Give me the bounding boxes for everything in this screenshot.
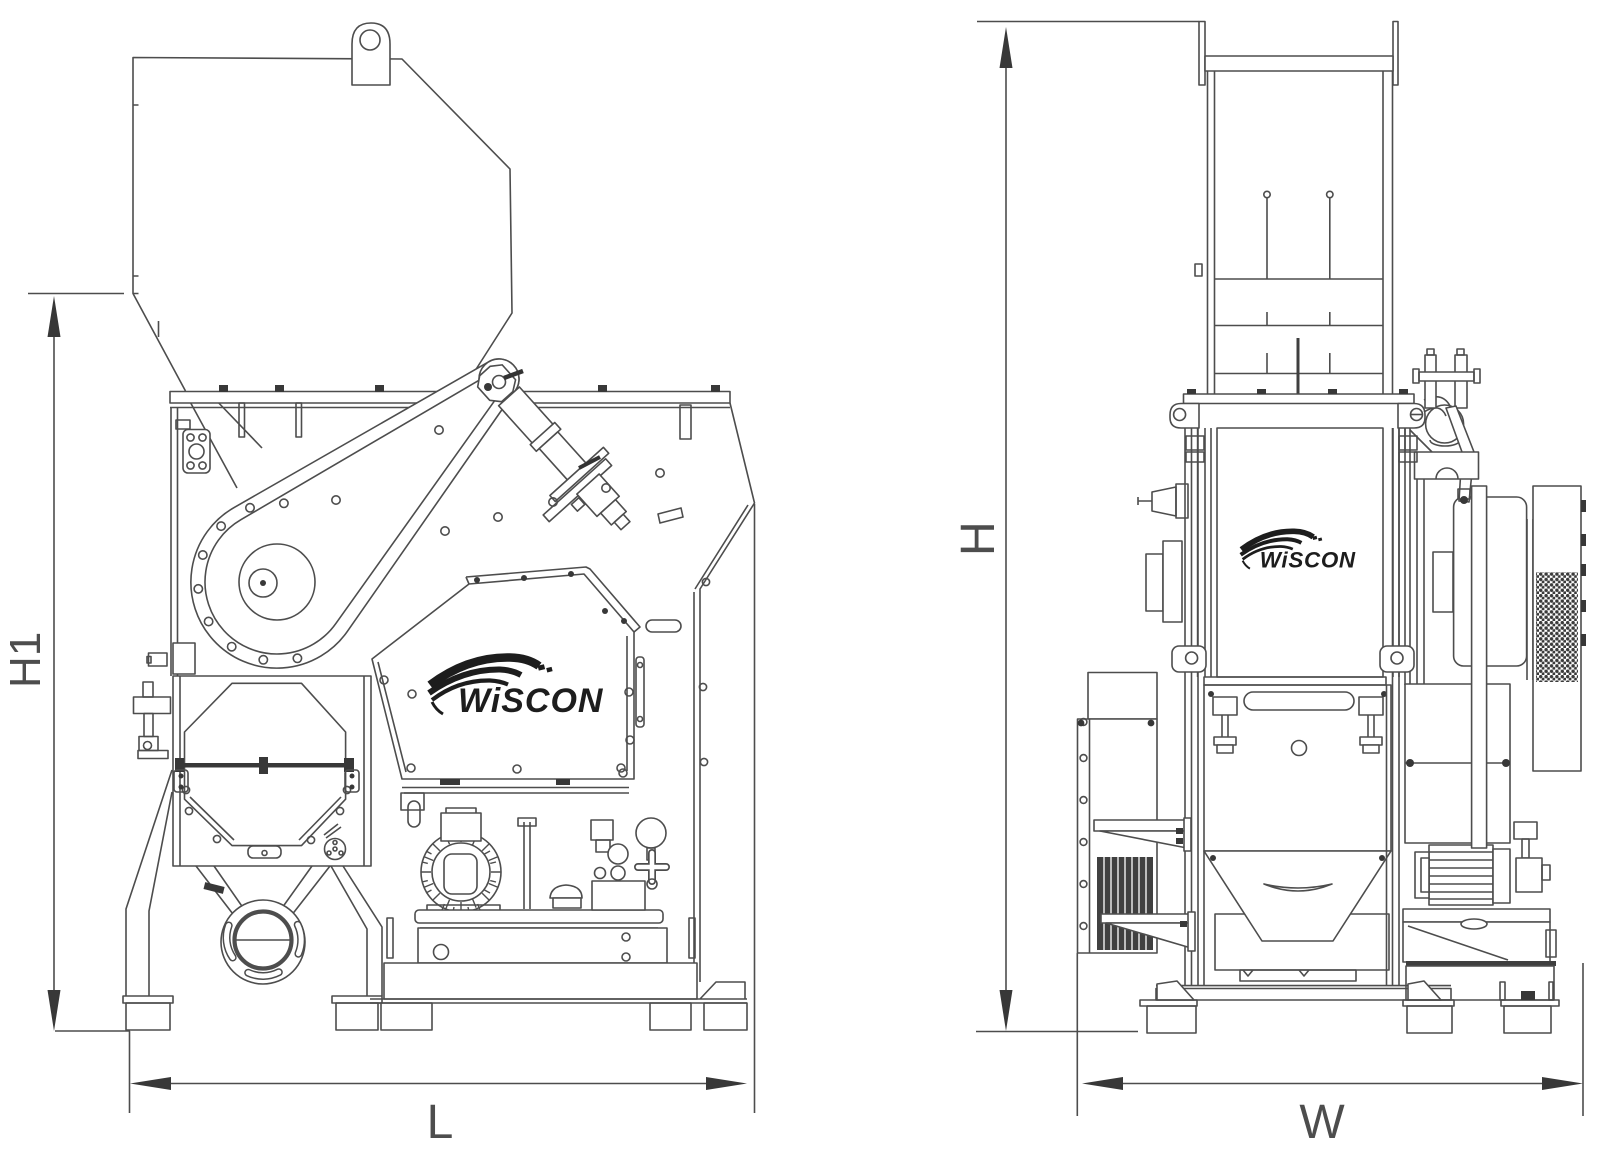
svg-text:WiSCON: WiSCON (1260, 547, 1356, 572)
svg-text:W: W (1299, 1096, 1345, 1149)
svg-text:WiSCON: WiSCON (458, 682, 604, 720)
svg-text:H1: H1 (1, 632, 50, 688)
svg-text:H: H (952, 521, 1005, 556)
svg-text:L: L (427, 1096, 454, 1149)
